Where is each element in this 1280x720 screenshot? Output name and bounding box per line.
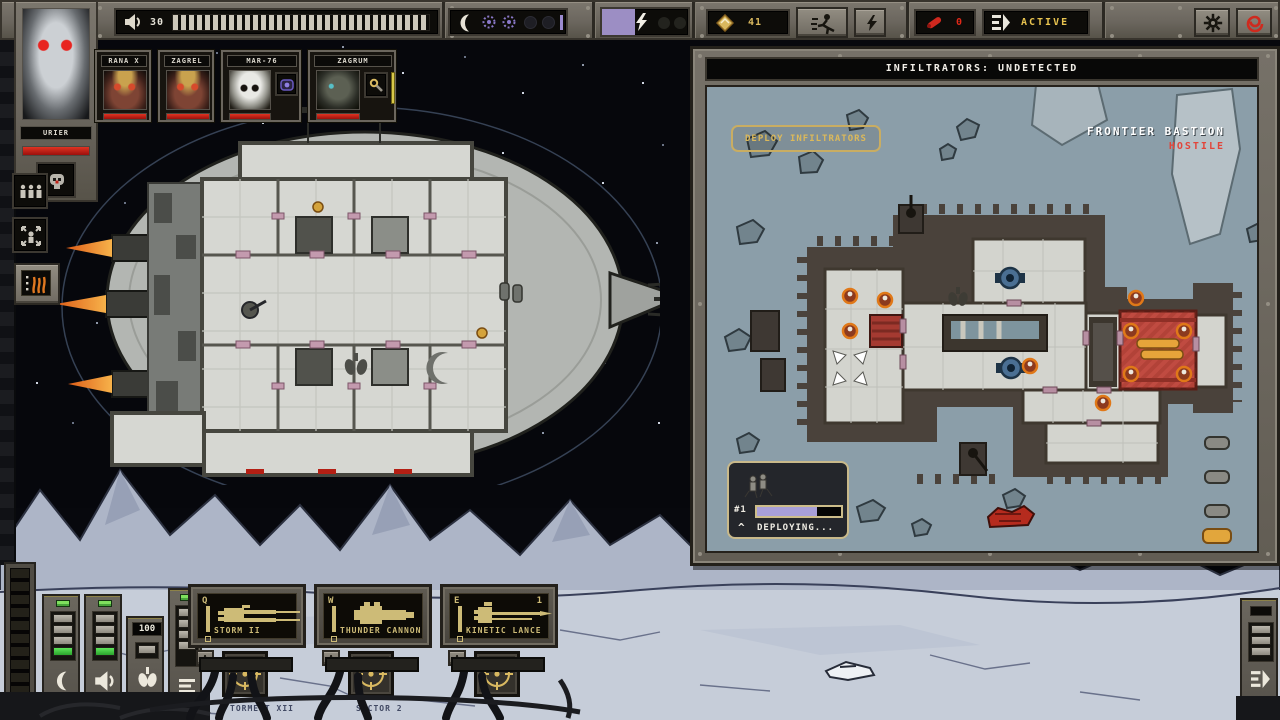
weapon-gauge: [332, 606, 336, 632]
selected-crew-panel[interactable]: URIER: [14, 0, 98, 202]
oxygen-gauge-tower: 100: [126, 616, 164, 716]
tower-cap: [1250, 606, 1272, 616]
hull-icon: [94, 670, 116, 692]
energy-bar-panel: [600, 7, 690, 37]
thrust-gauge-tower: [1240, 598, 1278, 716]
scrap-value: 41: [748, 17, 762, 28]
shield-status-panel: [448, 8, 568, 36]
weapon-station: E 1 KINETIC LANCE A: [440, 584, 564, 720]
shield-crescent-icon: [52, 670, 74, 692]
autofire-button[interactable]: A: [322, 650, 340, 666]
infiltration-map-panel: INFILTRATORS: UNDETECTED: [690, 46, 1280, 566]
status-led: [56, 600, 70, 607]
missile-counter: 0: [914, 9, 976, 36]
weapon-panel-kinetic[interactable]: E 1 KINETIC LANCE: [440, 584, 558, 648]
crew-portrait: [316, 70, 360, 110]
selected-crew-health: [22, 146, 90, 156]
gadget-icon: [280, 78, 294, 92]
seam: [442, 2, 445, 38]
scrap-counter: 41: [706, 9, 790, 36]
target-button[interactable]: [348, 651, 394, 697]
crew-card[interactable]: RANA X: [95, 50, 151, 122]
hull-gauge-tower: [84, 594, 122, 716]
crew-health: [316, 113, 360, 120]
weapon-hotkey: Q: [202, 596, 208, 606]
running-crew-icon: [810, 13, 836, 35]
weapon-station: Q STORM II A: [188, 584, 312, 720]
crew-health: [166, 113, 210, 120]
weapon-hotkey: W: [328, 596, 334, 606]
infiltrator-sprite: [741, 471, 777, 501]
power-button[interactable]: [854, 8, 886, 37]
crew-portrait: [229, 70, 271, 110]
thruster-icon: [1251, 670, 1271, 688]
engine-status: ACTIVE: [1021, 17, 1069, 28]
engine-status-panel: ACTIVE: [982, 9, 1090, 36]
weapon-name: KINETIC LANCE: [466, 626, 542, 635]
shield-tick: [560, 15, 563, 30]
ammo-slot-column: [4, 562, 36, 716]
seam: [592, 2, 595, 38]
status-led: [98, 600, 112, 607]
thruster-icon: [992, 14, 1011, 31]
red-spiral-icon: [1245, 14, 1265, 34]
weapon-station: W THUNDER CANNON A: [314, 584, 438, 720]
map-header: INFILTRATORS: UNDETECTED: [705, 57, 1259, 81]
target-button[interactable]: [222, 651, 268, 697]
energy-pip: [658, 17, 670, 29]
top-hud-bar: 30 41 0: [0, 0, 1280, 40]
autofire-button[interactable]: A: [196, 650, 214, 666]
crew-name: ZAGREL: [164, 55, 210, 67]
weapon-gauge: [458, 606, 462, 632]
weapon-hotkey: E: [454, 596, 460, 606]
weapon-gauge-pip: [457, 636, 463, 642]
seam: [692, 2, 695, 38]
crew-gadget-slot[interactable]: [275, 72, 298, 96]
missile-icon: [924, 14, 944, 32]
map-viewport[interactable]: DEPLOY INFILTRATORS FRONTIER BASTION HOS…: [705, 85, 1259, 553]
weapon-name: THUNDER CANNON: [340, 626, 421, 635]
flame-icon: [25, 273, 49, 295]
rivet: [698, 54, 702, 58]
missile-value: 0: [956, 17, 963, 28]
shield-cell-icon: [502, 15, 516, 29]
weapon-panel-thunder[interactable]: W THUNDER CANNON: [314, 584, 432, 648]
squad-status-card[interactable]: #1 ^ DEPLOYING...: [727, 461, 849, 539]
bolt-icon: [865, 15, 879, 31]
weapon-gauge-pip: [205, 636, 211, 642]
gauge-segments: [92, 611, 118, 661]
crew-card[interactable]: ZAGREL: [158, 50, 214, 122]
debris-barrels: [1203, 437, 1231, 543]
energy-fill: [602, 9, 635, 35]
location-status: HOSTILE: [1005, 141, 1225, 152]
crew-portrait: [166, 70, 210, 110]
squad-id: #1: [734, 505, 747, 515]
crew-health: [229, 113, 271, 120]
deploy-progress-bar: [755, 505, 843, 518]
crew-portrait: [103, 70, 147, 110]
autofire-button[interactable]: A: [448, 650, 466, 666]
crew-name: MAR-76: [227, 55, 297, 67]
seam: [906, 2, 909, 38]
build-version-text: SE 1.1.0A - 2023.11.20 - PN16: [28, 704, 197, 713]
lightning-icon: [634, 13, 650, 31]
hull-integrity-panel: 30: [114, 8, 440, 36]
weapon-gauge: [206, 606, 210, 632]
scatter-icon: [19, 224, 43, 248]
gauge-segments: [1248, 622, 1274, 662]
crew-name: RANA X: [101, 55, 147, 67]
shield-crescent-icon: [456, 13, 476, 33]
settings-button[interactable]: [1194, 8, 1230, 37]
crew-tool-slot[interactable]: [364, 72, 388, 98]
wrench-icon: [369, 78, 384, 93]
crosshair-icon: [227, 656, 263, 692]
deploy-progress-fill: [757, 507, 817, 516]
energy-pip: [674, 17, 686, 29]
shield-gauge-tower: [42, 594, 80, 716]
gauge-segments: [135, 642, 159, 659]
vent-screen: [21, 270, 51, 296]
vent-heat-button[interactable]: [14, 263, 60, 305]
gear-icon: [1203, 13, 1223, 33]
lungs-icon: [137, 666, 157, 688]
game-screen: 30 41 0: [0, 0, 1280, 720]
crew-group-button[interactable]: [12, 173, 48, 209]
seam: [1102, 2, 1105, 38]
game-title-text: TORMENT XII: [230, 704, 294, 713]
crosshair-icon: [479, 656, 515, 692]
shield-cell-icon: [482, 15, 496, 29]
crew-charge-bar: [391, 72, 395, 104]
hull-icon: [124, 13, 142, 31]
crosshair-icon: [353, 656, 389, 692]
crew-group-icon: [19, 184, 43, 201]
selected-crew-name: URIER: [20, 126, 92, 140]
crew-card[interactable]: ZAGRUM: [308, 50, 396, 122]
oxygen-value: 100: [132, 622, 162, 636]
player-ship[interactable]: [50, 95, 660, 485]
location-name: FRONTIER BASTION: [1005, 125, 1225, 138]
scrap-coin-icon: [716, 14, 734, 32]
skull-emblem-icon: [46, 170, 68, 192]
collapse-chevron-icon[interactable]: ^: [738, 521, 746, 534]
weapon-panel-storm[interactable]: Q STORM II: [188, 584, 306, 648]
rivet: [98, 6, 102, 10]
squad-status-text: DEPLOYING...: [757, 523, 834, 533]
crew-orders-button[interactable]: [796, 7, 848, 38]
hull-value: 30: [150, 17, 164, 28]
shield-cell-empty: [542, 16, 555, 29]
crew-card[interactable]: MAR-76: [221, 50, 301, 122]
weapon-gauge-pip: [331, 636, 337, 642]
selected-crew-portrait: [22, 8, 90, 120]
alert-spiral-button[interactable]: [1236, 8, 1272, 37]
target-button[interactable]: [474, 651, 520, 697]
crew-health: [103, 113, 147, 120]
weapon-name: STORM II: [214, 626, 261, 635]
crew-name: ZAGRUM: [314, 55, 392, 67]
gauge-segments: [50, 611, 76, 661]
sector-text: SECTOR 2: [356, 704, 403, 713]
deploy-infiltrators-button[interactable]: DEPLOY INFILTRATORS: [731, 125, 881, 152]
scatter-crew-button[interactable]: [12, 217, 48, 253]
shield-cell-empty: [524, 16, 537, 29]
hull-segment-bar: [172, 14, 430, 31]
